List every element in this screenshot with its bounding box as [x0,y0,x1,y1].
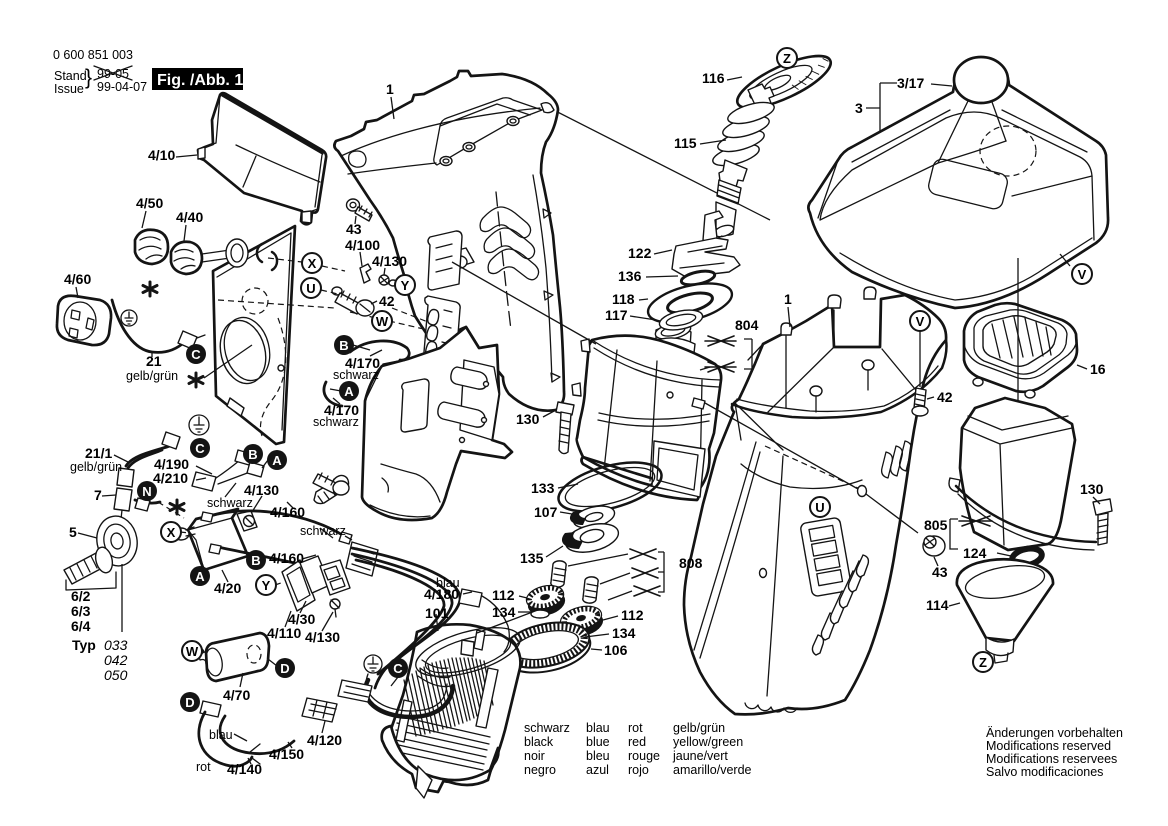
svg-text:bleu: bleu [586,749,610,763]
svg-text:U: U [815,500,824,515]
svg-text:D: D [185,695,194,710]
svg-text:gelb/grün: gelb/grün [70,460,122,474]
svg-text:4/150: 4/150 [269,746,304,762]
svg-text:yellow/green: yellow/green [673,735,743,749]
svg-text:Issue: Issue [54,82,84,96]
svg-text:C: C [195,441,205,456]
svg-text:jaune/vert: jaune/vert [672,749,728,763]
svg-text:B: B [248,447,257,462]
svg-text:C: C [191,347,201,362]
svg-text:Z: Z [979,655,987,670]
svg-text:134: 134 [492,604,516,620]
svg-text:A: A [344,384,354,399]
svg-text:16: 16 [1090,361,1106,377]
svg-text:schwarz: schwarz [333,368,379,382]
svg-text:112: 112 [492,587,515,603]
svg-text:noir: noir [524,749,545,763]
svg-text:042: 042 [104,652,128,668]
svg-text:red: red [628,735,646,749]
svg-text:azul: azul [586,763,609,777]
svg-text:X: X [167,525,176,540]
svg-text:117: 117 [605,307,628,323]
svg-text:V: V [916,314,925,329]
svg-text:115: 115 [674,135,697,151]
svg-text:4/210: 4/210 [153,470,188,486]
svg-text:5: 5 [69,524,77,540]
svg-text:U: U [306,281,315,296]
svg-text:118: 118 [612,291,635,307]
svg-text:122: 122 [628,245,652,261]
svg-text:136: 136 [618,268,642,284]
svg-text:A: A [195,569,205,584]
svg-text:Modifications reserved: Modifications reserved [986,739,1111,753]
svg-text:4/50: 4/50 [136,195,163,211]
svg-text:4/40: 4/40 [176,209,203,225]
svg-text:C: C [393,661,403,676]
svg-text:amarillo/verde: amarillo/verde [673,763,752,777]
svg-text:21/1: 21/1 [85,445,112,461]
svg-text:gelb/grün: gelb/grün [673,721,725,735]
svg-text:}: } [85,66,92,89]
svg-text:rot: rot [196,760,211,774]
svg-text:6/4: 6/4 [71,618,91,634]
svg-text:4/70: 4/70 [223,687,250,703]
svg-text:804: 804 [735,317,759,333]
svg-text:3: 3 [855,100,863,116]
svg-text:42: 42 [937,389,953,405]
svg-text:4/10: 4/10 [148,147,175,163]
svg-text:124: 124 [963,545,987,561]
svg-text:V: V [1078,267,1087,282]
svg-text:050: 050 [104,667,128,683]
svg-text:0 600 851 003: 0 600 851 003 [53,48,133,62]
svg-text:Z: Z [783,51,791,66]
svg-text:6/3: 6/3 [71,603,91,619]
svg-text:4/110: 4/110 [267,625,301,641]
svg-text:3/17: 3/17 [897,75,924,91]
svg-text:4/160: 4/160 [269,550,304,566]
svg-text:blau: blau [436,576,460,590]
svg-text:133: 133 [531,480,555,496]
svg-text:130: 130 [516,411,540,427]
svg-text:130: 130 [1080,481,1104,497]
svg-text:4/120: 4/120 [307,732,342,748]
svg-text:805: 805 [924,517,948,533]
svg-text:1: 1 [386,81,394,97]
svg-text:4/160: 4/160 [270,504,305,520]
svg-text:43: 43 [346,221,362,237]
svg-text:W: W [376,314,389,329]
svg-text:Typ: Typ [72,637,96,653]
svg-text:N: N [142,484,151,499]
svg-text:21: 21 [146,353,162,369]
svg-text:112: 112 [621,607,644,623]
svg-text:A: A [272,453,282,468]
svg-text:Y: Y [401,278,410,293]
svg-text:107: 107 [534,504,558,520]
svg-text:Modifications reservees: Modifications reservees [986,752,1117,766]
svg-text:6/2: 6/2 [71,588,91,604]
svg-text:Änderungen vorbehalten: Änderungen vorbehalten [986,726,1123,740]
svg-text:X: X [308,256,317,271]
svg-text:1: 1 [784,291,792,307]
svg-text:135: 135 [520,550,544,566]
svg-text:blau: blau [586,721,610,735]
svg-text:4/60: 4/60 [64,271,91,287]
svg-text:4/100: 4/100 [345,237,380,253]
svg-text:W: W [186,644,199,659]
svg-text:schwarz: schwarz [313,415,359,429]
svg-text:rojo: rojo [628,763,649,777]
svg-text:schwarz: schwarz [524,721,570,735]
svg-text:black: black [524,735,554,749]
svg-text:808: 808 [679,555,703,571]
svg-text:106: 106 [604,642,628,658]
svg-text:blue: blue [586,735,610,749]
svg-text:4/130: 4/130 [372,253,407,269]
svg-text:gelb/grün: gelb/grün [126,369,178,383]
svg-text:033: 033 [104,637,128,653]
svg-text:99-04-07: 99-04-07 [97,80,147,94]
svg-text:Y: Y [262,578,271,593]
svg-text:101: 101 [425,605,449,621]
svg-text:rouge: rouge [628,749,660,763]
svg-text:Stand: Stand [54,69,87,83]
svg-text:7: 7 [94,487,102,503]
svg-text:43: 43 [932,564,948,580]
svg-text:4/140: 4/140 [227,761,262,777]
svg-text:schwarz: schwarz [207,496,253,510]
svg-text:B: B [251,553,260,568]
svg-text:schwarz: schwarz [300,524,346,538]
svg-text:blau: blau [209,728,233,742]
svg-text:4/130: 4/130 [305,629,340,645]
svg-text:negro: negro [524,763,556,777]
svg-text:116: 116 [702,70,725,86]
svg-text:B: B [339,338,348,353]
svg-text:Salvo modificaciones: Salvo modificaciones [986,765,1103,779]
svg-text:D: D [280,661,289,676]
svg-text:42: 42 [379,293,395,309]
svg-text:114: 114 [926,597,949,613]
svg-text:4/20: 4/20 [214,580,241,596]
svg-text:134: 134 [612,625,636,641]
svg-text:Fig. /Abb. 1: Fig. /Abb. 1 [157,72,243,89]
svg-text:rot: rot [628,721,643,735]
